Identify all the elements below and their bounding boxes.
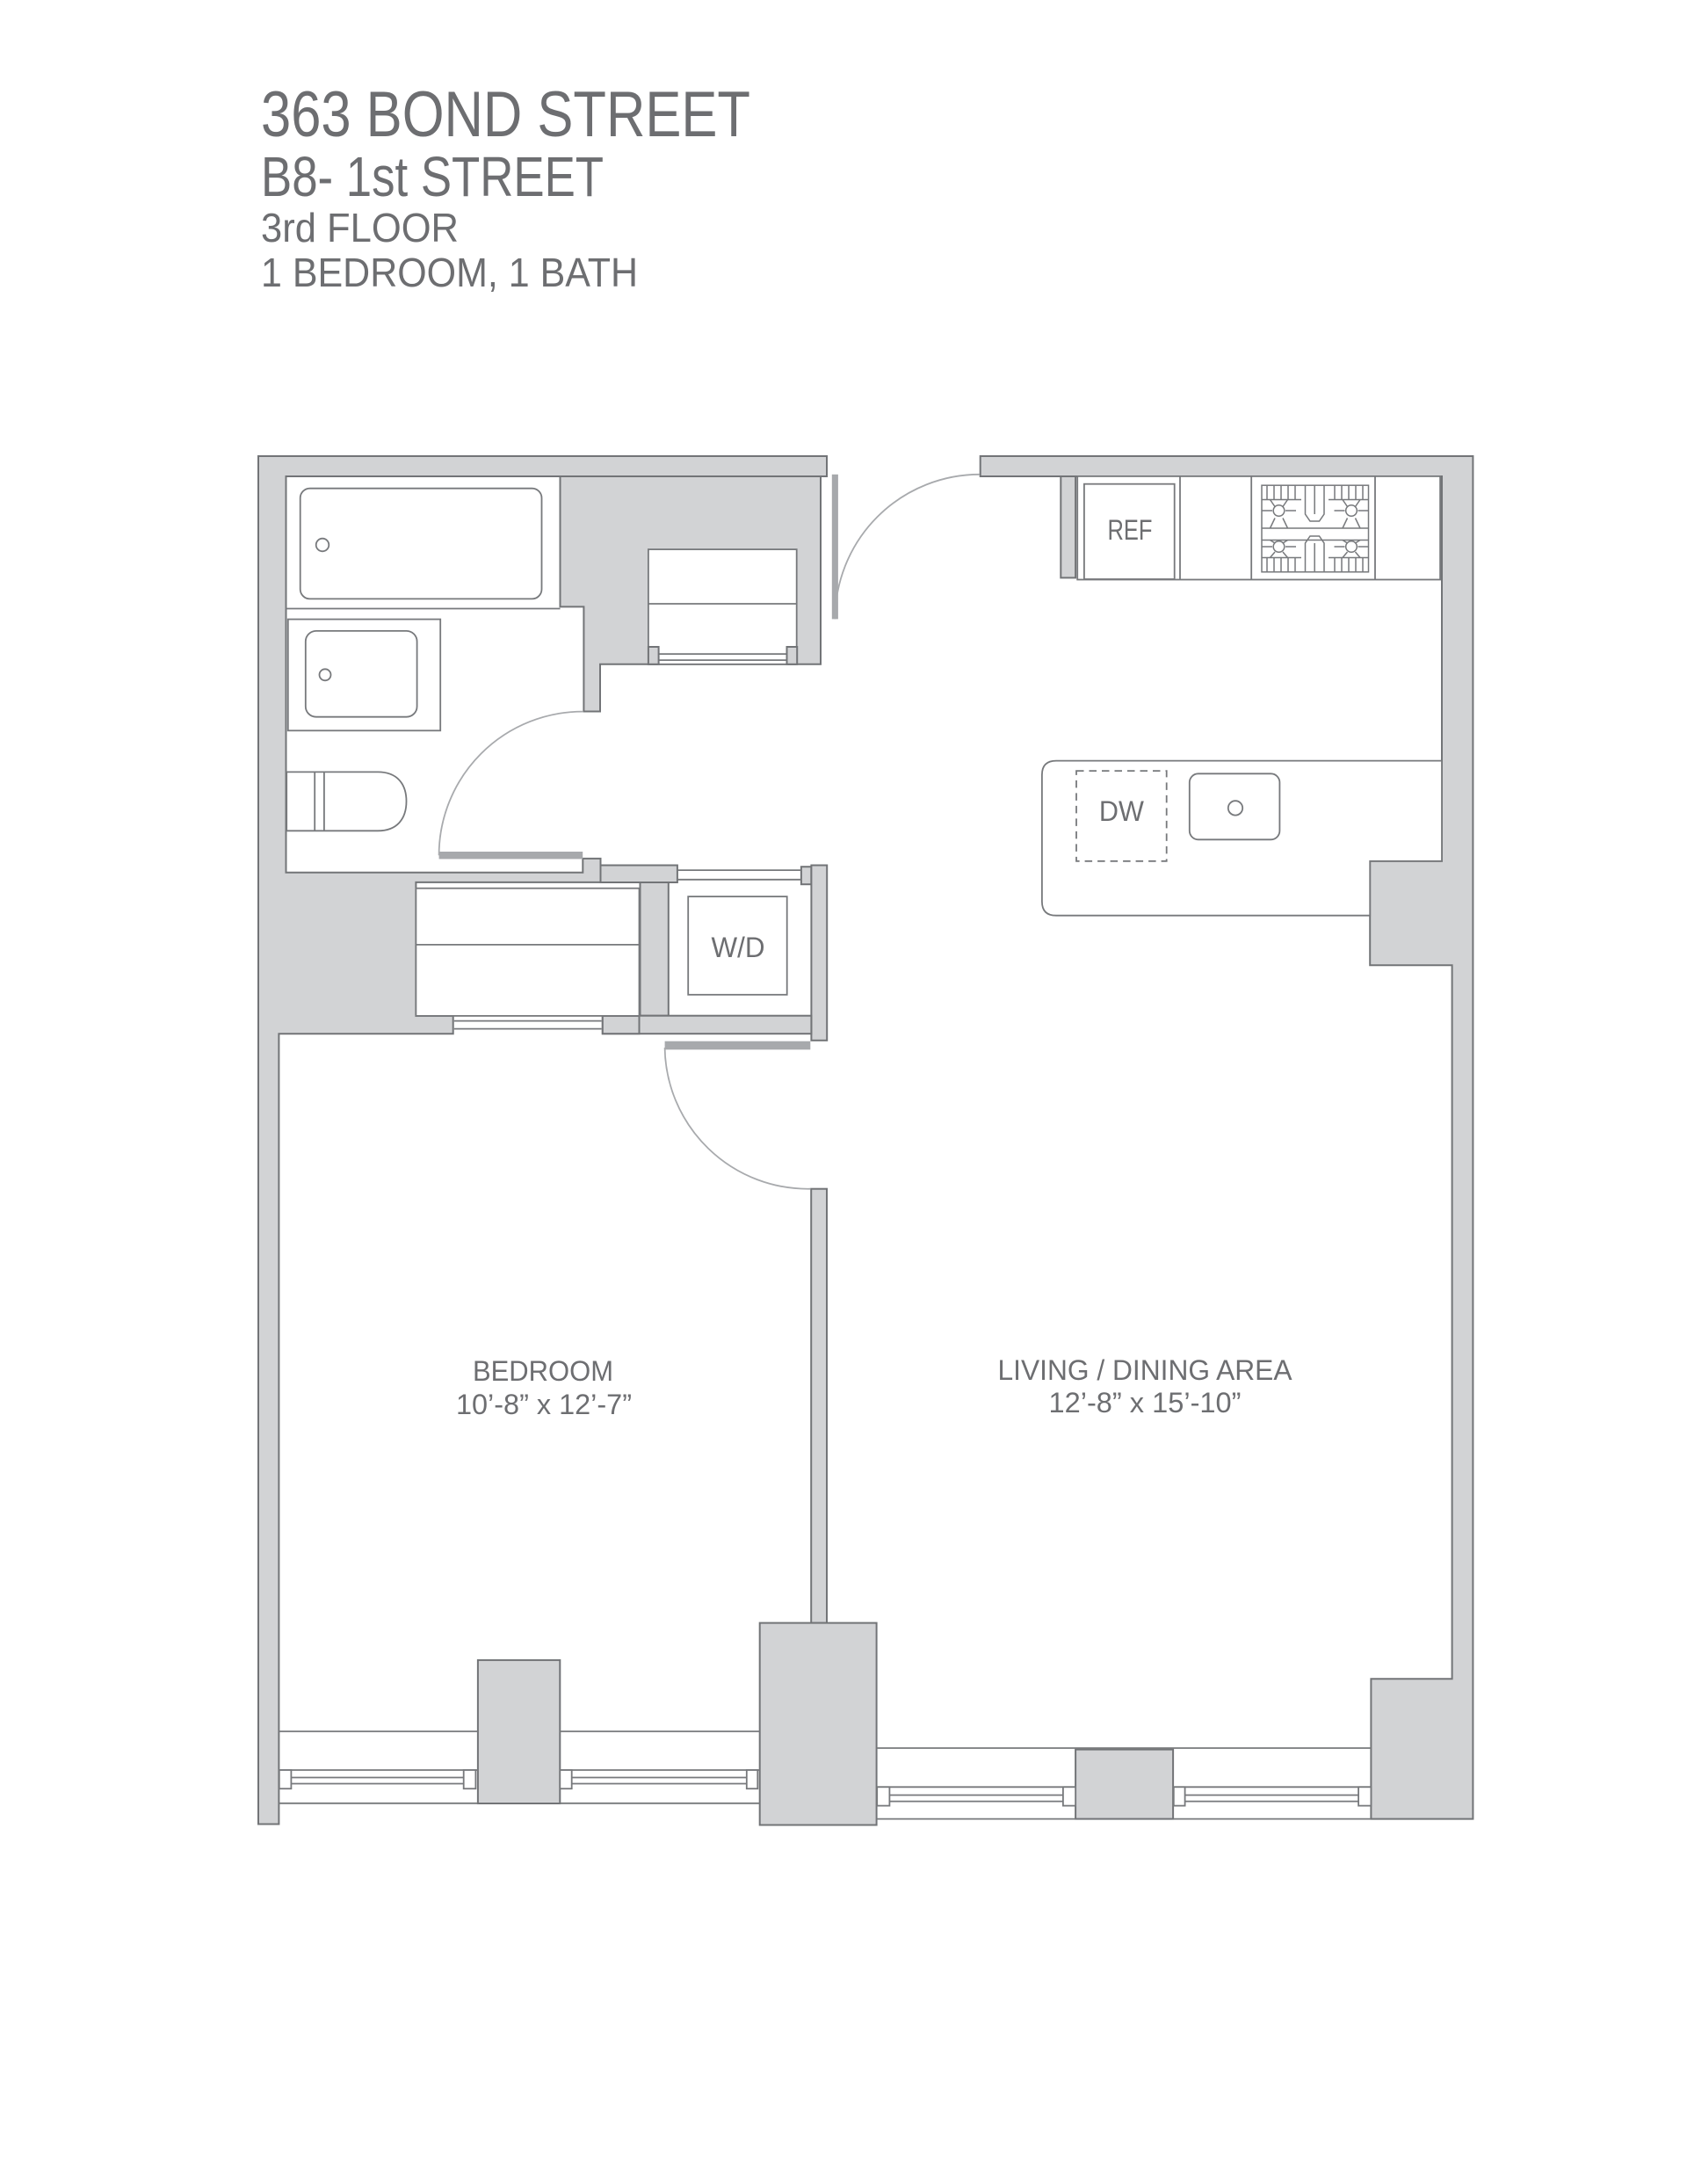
svg-text:DW: DW bbox=[1099, 795, 1145, 827]
svg-text:B8- 1st STREET: B8- 1st STREET bbox=[261, 145, 604, 208]
svg-text:363 BOND STREET: 363 BOND STREET bbox=[261, 79, 750, 150]
svg-text:12’-8” x 15’-10”: 12’-8” x 15’-10” bbox=[1049, 1387, 1242, 1419]
svg-text:LIVING / DINING AREA: LIVING / DINING AREA bbox=[998, 1354, 1293, 1386]
svg-text:1 BEDROOM, 1 BATH: 1 BEDROOM, 1 BATH bbox=[261, 250, 638, 295]
svg-text:3rd FLOOR: 3rd FLOOR bbox=[261, 205, 459, 250]
svg-text:BEDROOM: BEDROOM bbox=[473, 1355, 613, 1387]
svg-text:REF: REF bbox=[1108, 514, 1153, 546]
svg-text:W/D: W/D bbox=[712, 932, 765, 963]
svg-text:10’-8” x 12’-7”: 10’-8” x 12’-7” bbox=[456, 1389, 632, 1420]
